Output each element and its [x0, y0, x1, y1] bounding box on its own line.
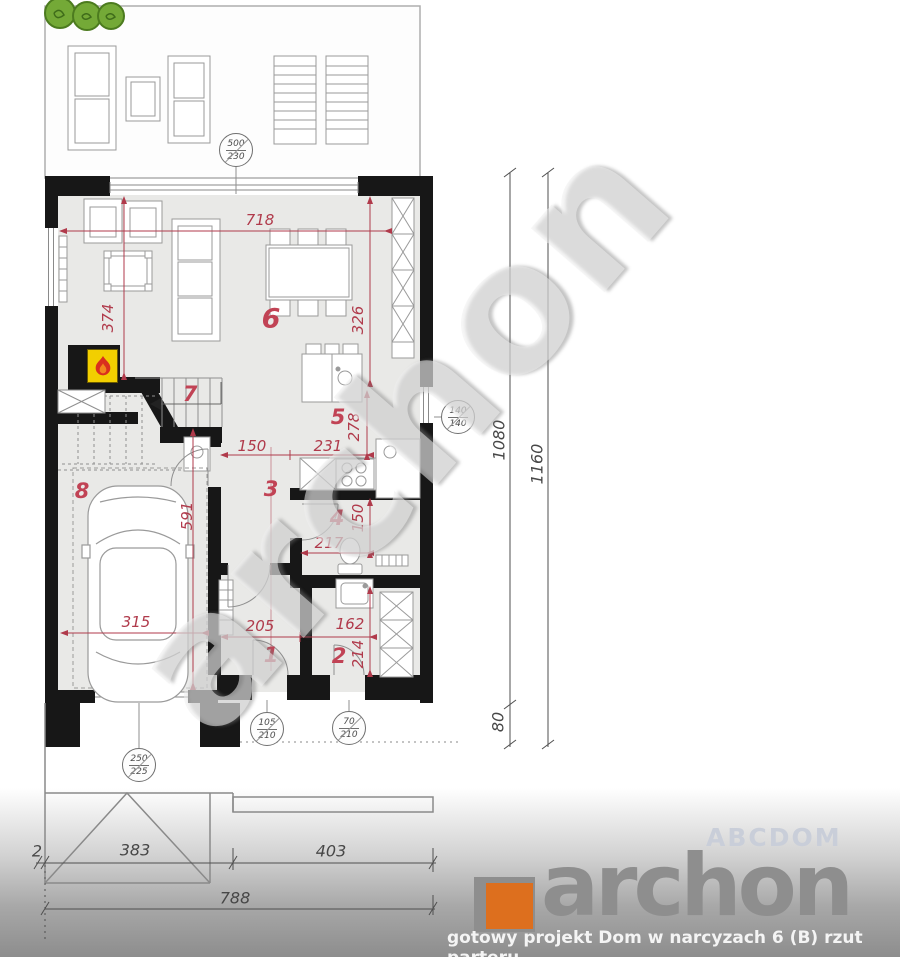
garage-door-marker: 250 225: [122, 748, 156, 782]
dim-utility-depth: 214: [349, 640, 367, 669]
project-tagline: gotowy projekt Dom w narcyzach 6 (B) rzu…: [447, 928, 900, 957]
dim-kitchen-depth: 278: [345, 413, 363, 442]
archon-logo-orange-square: [486, 883, 533, 929]
utility-door-marker: 70 210: [332, 711, 366, 745]
kitchen-window-marker: 140 140: [441, 400, 475, 434]
room-label-garage: 8: [75, 479, 90, 503]
dim-side-offset: 80: [489, 712, 508, 732]
dim-wc-width: 217: [315, 534, 344, 552]
dim-side-inner: 1080: [490, 420, 509, 461]
dim-front-sliver: 2: [32, 842, 42, 861]
dim-front-right: 403: [316, 842, 347, 861]
dim-garage-depth: 591: [178, 502, 196, 531]
dim-front-garage: 383: [120, 841, 151, 860]
dim-hall-width: 150: [238, 437, 267, 455]
terrace-door-marker: 500 230: [219, 133, 253, 167]
dim-garage-width: 315: [122, 613, 151, 631]
dim-living-width: 718: [246, 211, 275, 229]
dim-wc-depth: 150: [349, 504, 367, 533]
flame-icon: [93, 353, 113, 379]
room-label-living: 6: [262, 304, 281, 335]
plan-drawing: [0, 0, 900, 957]
archon-logo-text: archon: [541, 843, 850, 929]
room-label-wc: 4: [330, 506, 345, 530]
floor-plan-sheet: 500 230 140 140 105 210 70 210 250 225 7…: [0, 0, 900, 957]
dim-living-right-depth: 326: [349, 306, 367, 335]
dim-side-outer: 1160: [528, 444, 547, 485]
dim-front-total: 788: [220, 889, 251, 908]
dim-living-left-depth: 374: [99, 304, 117, 333]
room-label-kitchen: 5: [331, 405, 346, 429]
dim-utility-width: 162: [336, 615, 365, 633]
room-label-entry: 1: [264, 643, 279, 667]
room-label-stairs: 7: [183, 382, 198, 406]
fireplace-icon: [87, 349, 118, 383]
dim-entry-width: 205: [246, 617, 275, 635]
garden-bush-icons: [45, 0, 124, 30]
room-label-hall: 3: [264, 477, 279, 501]
room-label-utility: 2: [332, 644, 347, 668]
entry-door-marker: 105 210: [250, 712, 284, 746]
dim-kitchen-width: 231: [314, 437, 343, 455]
archon-logo-mark: [474, 877, 535, 932]
